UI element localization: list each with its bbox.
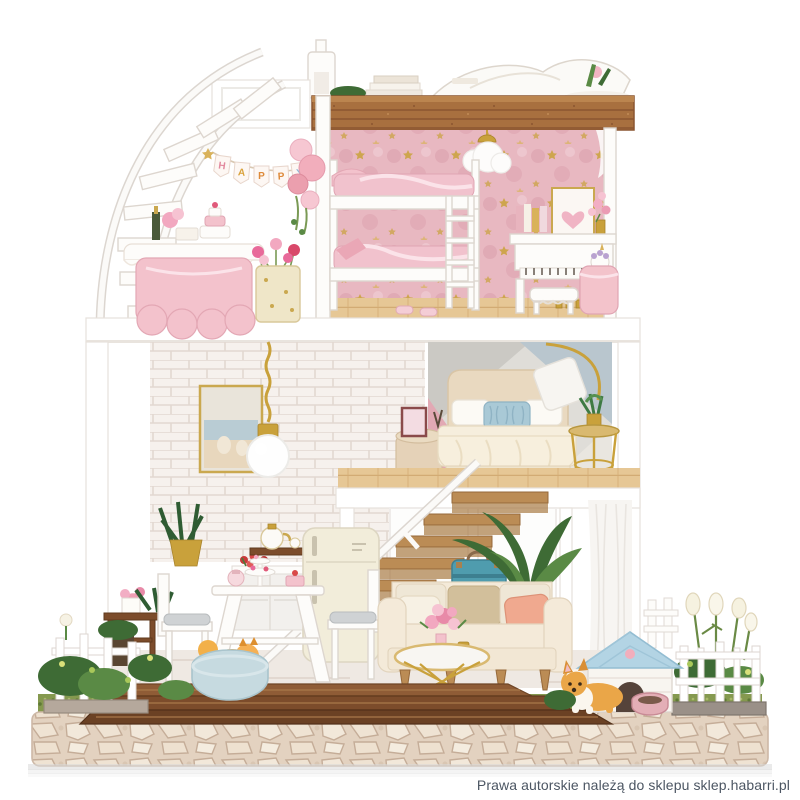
white-flower bbox=[60, 614, 72, 626]
stool-photo-frame bbox=[402, 408, 426, 436]
banner-letter: P bbox=[278, 171, 286, 182]
tiered-cake bbox=[200, 202, 230, 238]
wooden-parapet bbox=[312, 96, 634, 130]
banner-letter: A bbox=[237, 167, 245, 179]
room-left-post bbox=[316, 96, 330, 320]
bottom-bunk-rail bbox=[330, 268, 479, 281]
garden-chair bbox=[644, 598, 678, 648]
middle-floor-left bbox=[150, 342, 425, 562]
cake-box bbox=[176, 228, 198, 240]
product-photo: H A P P Y bbox=[0, 0, 800, 800]
table-skirt bbox=[136, 258, 255, 339]
right-fence bbox=[672, 642, 766, 715]
left-outer-pillar bbox=[86, 342, 108, 672]
dog-house-sign bbox=[625, 649, 635, 659]
pink-food-bowl bbox=[632, 693, 668, 715]
copyright-watermark: Prawa autorskie należą do sklepu sklep.h… bbox=[477, 777, 790, 793]
bedroom-wood-floor bbox=[338, 468, 640, 488]
banner-letter: H bbox=[218, 160, 227, 172]
top-bunk-rail bbox=[330, 196, 479, 209]
heart-picture bbox=[552, 188, 594, 236]
fence-stone-base bbox=[44, 700, 148, 713]
fence-stone-base-right bbox=[672, 702, 766, 715]
bottle bbox=[152, 212, 160, 240]
piano-top bbox=[510, 234, 616, 244]
chimney-lamp bbox=[308, 40, 335, 98]
party-table bbox=[124, 202, 264, 339]
banner-letter: P bbox=[258, 171, 265, 182]
book-stack bbox=[366, 76, 422, 97]
dollhouse-illustration: H A P P Y bbox=[0, 0, 800, 800]
drop-shadow bbox=[28, 764, 772, 777]
candy-bucket bbox=[252, 238, 300, 322]
